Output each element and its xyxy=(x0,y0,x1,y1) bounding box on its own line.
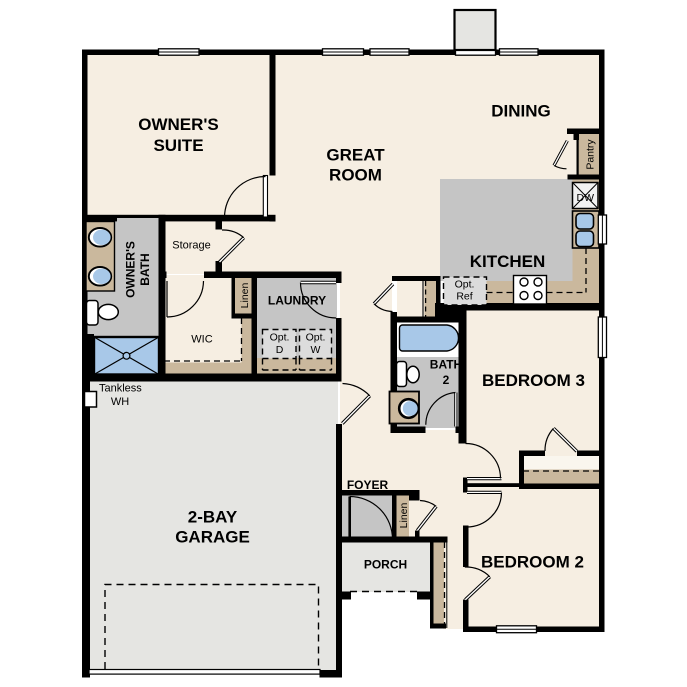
svg-text:Ref: Ref xyxy=(456,291,472,303)
svg-text:PORCH: PORCH xyxy=(364,558,407,572)
svg-text:BATH: BATH xyxy=(430,358,462,372)
svg-text:Opt.: Opt. xyxy=(306,332,326,344)
svg-text:Storage: Storage xyxy=(172,240,211,252)
svg-text:Pantry: Pantry xyxy=(585,139,597,170)
svg-text:BATH: BATH xyxy=(138,253,152,285)
svg-text:Tankless: Tankless xyxy=(99,383,142,395)
svg-text:LAUNDRY: LAUNDRY xyxy=(268,294,326,308)
svg-text:DW: DW xyxy=(577,192,595,204)
svg-text:W: W xyxy=(311,344,321,356)
svg-text:2-BAY: 2-BAY xyxy=(188,508,238,527)
svg-text:Opt.: Opt. xyxy=(270,332,290,344)
svg-text:Linen: Linen xyxy=(398,503,410,529)
svg-text:BEDROOM 3: BEDROOM 3 xyxy=(482,371,585,390)
svg-text:FOYER: FOYER xyxy=(347,478,389,492)
svg-text:WH: WH xyxy=(111,396,129,408)
svg-text:SUITE: SUITE xyxy=(153,136,203,155)
svg-text:D: D xyxy=(276,344,284,356)
svg-text:WIC: WIC xyxy=(191,334,212,346)
svg-text:DINING: DINING xyxy=(491,102,551,121)
svg-text:GREAT: GREAT xyxy=(326,146,385,165)
svg-text:2: 2 xyxy=(443,373,450,387)
svg-text:KITCHEN: KITCHEN xyxy=(470,252,546,271)
svg-text:BEDROOM 2: BEDROOM 2 xyxy=(481,553,584,572)
svg-text:ROOM: ROOM xyxy=(329,166,382,185)
svg-text:OWNER'S: OWNER'S xyxy=(138,115,219,134)
svg-text:Opt.: Opt. xyxy=(455,279,475,291)
svg-text:GARAGE: GARAGE xyxy=(175,528,250,547)
svg-text:Linen: Linen xyxy=(239,283,251,309)
svg-text:OWNER'S: OWNER'S xyxy=(124,241,138,298)
